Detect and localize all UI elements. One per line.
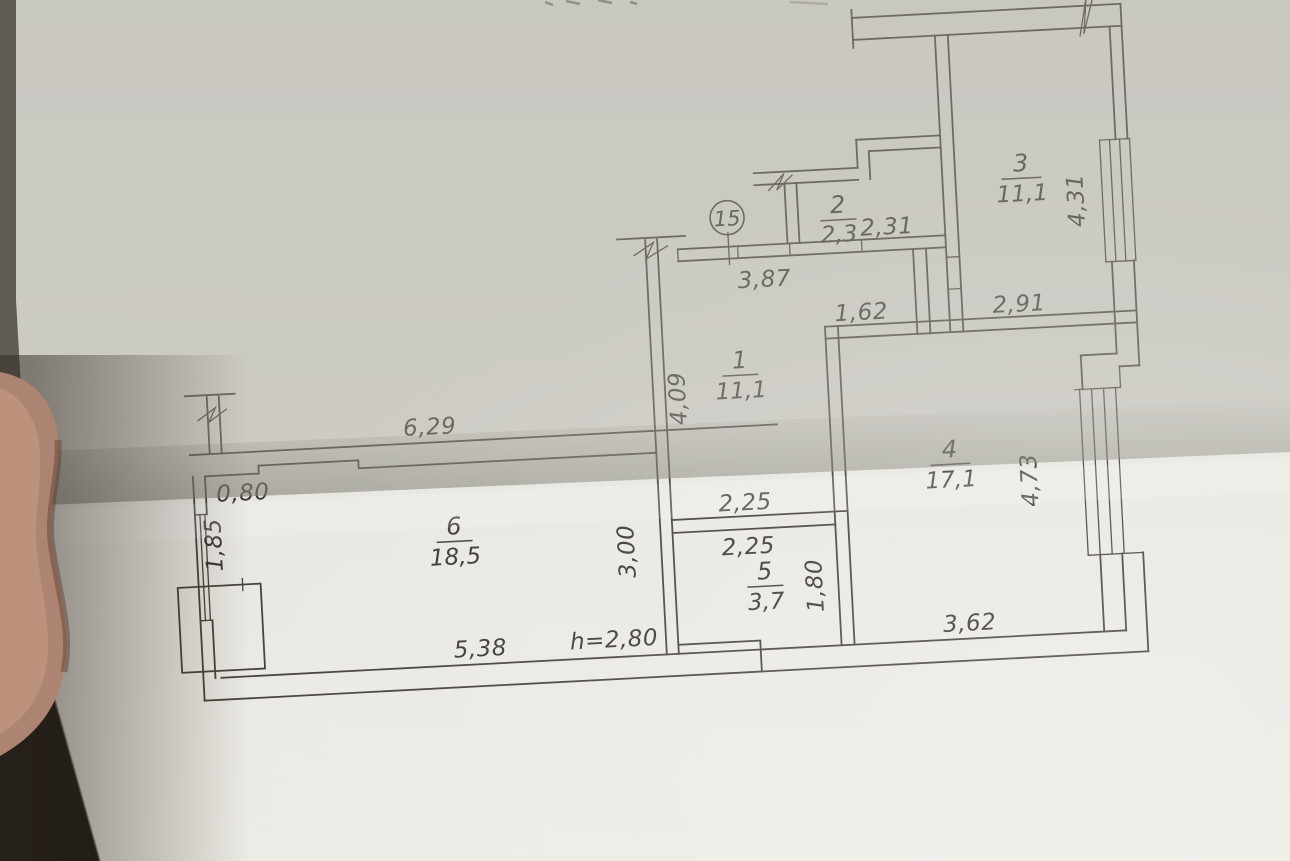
photo-canvas: 15 1 11,1 2 2,3 3 11,1 4 17,1 <box>0 0 1290 861</box>
floorplan-photo: 15 1 11,1 2 2,3 3 11,1 4 17,1 <box>0 0 1290 861</box>
